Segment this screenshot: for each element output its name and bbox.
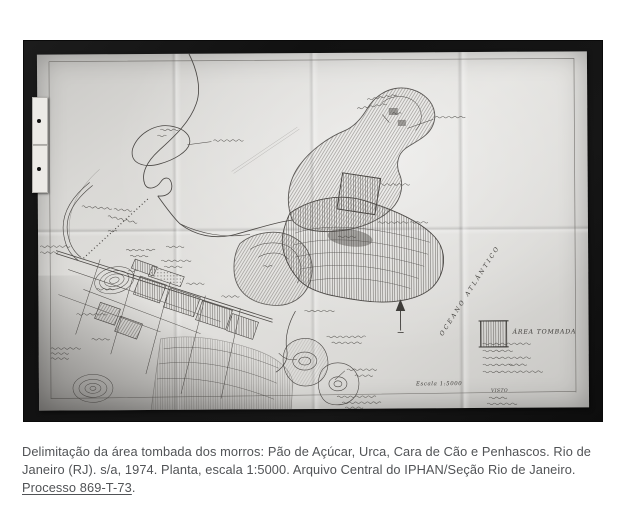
caption-period: . xyxy=(132,480,136,495)
cara-de-cao-contours xyxy=(288,88,436,232)
document-page: ÁREA TOMBADA OCEANO ATLÂNTICO Escala 1:5… xyxy=(0,0,625,512)
figure-caption: Delimitação da área tombada dos morros: … xyxy=(22,443,602,498)
cable-line xyxy=(231,127,299,173)
slope-hatch-zone xyxy=(151,336,293,410)
north-arrow-icon xyxy=(396,300,404,332)
map-photograph: ÁREA TOMBADA OCEANO ATLÂNTICO Escala 1:5… xyxy=(24,41,602,421)
map-drawing: ÁREA TOMBADA OCEANO ATLÂNTICO Escala 1:5… xyxy=(37,51,589,410)
island xyxy=(132,125,212,165)
legend-title: ÁREA TOMBADA xyxy=(512,328,577,335)
legend-area-tombada: ÁREA TOMBADA xyxy=(479,320,577,347)
scale-label: Escala 1:5000 xyxy=(415,381,462,387)
shore-road-arcs xyxy=(63,169,100,260)
folded-map-paper: ÁREA TOMBADA OCEANO ATLÂNTICO Escala 1:5… xyxy=(37,51,589,410)
caption-process-number: Processo 869-T-73 xyxy=(22,480,132,495)
caption-text: Delimitação da área tombada dos morros: … xyxy=(22,444,591,477)
hole-punch-tab-top xyxy=(32,97,48,145)
visto-label: VISTO xyxy=(491,388,508,394)
small-hill-contours xyxy=(92,262,137,298)
hole-punch-tab-bottom xyxy=(32,145,48,193)
